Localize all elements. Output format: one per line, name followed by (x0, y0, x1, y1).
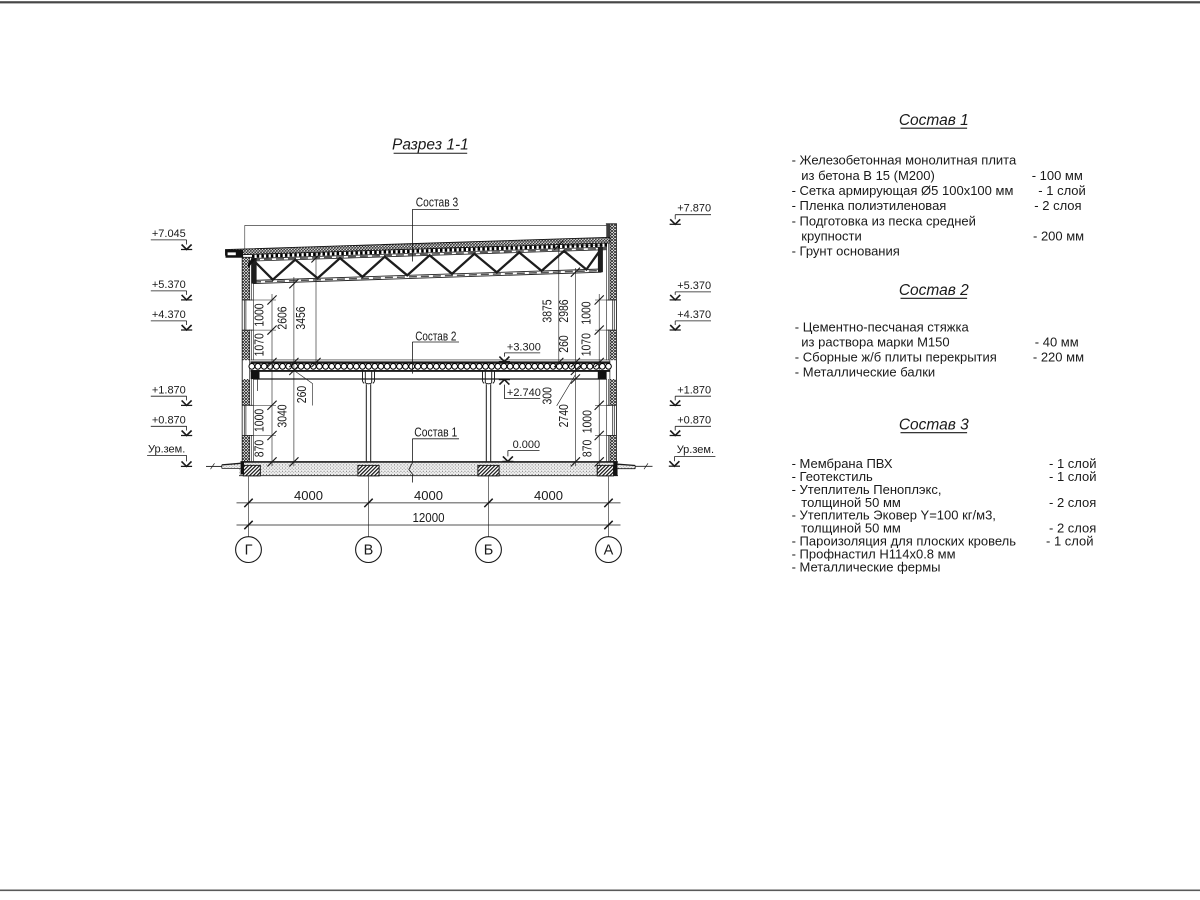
svg-text:870: 870 (580, 440, 595, 457)
svg-text:Состав 2: Состав 2 (415, 328, 456, 343)
svg-text:+0.870: +0.870 (152, 415, 186, 427)
svg-text:260: 260 (294, 386, 309, 403)
svg-text:- Сетка армирующая Ø5 100х100: - Сетка армирующая Ø5 100х100 мм (792, 183, 1014, 198)
svg-text:- 2 слоя: - 2 слоя (1049, 495, 1096, 510)
svg-text:- 1 слой: - 1 слой (1049, 469, 1097, 484)
svg-text:3456: 3456 (293, 306, 308, 329)
svg-text:+4.370: +4.370 (677, 309, 711, 321)
svg-text:2740: 2740 (556, 404, 571, 427)
svg-text:Б: Б (484, 543, 494, 559)
svg-text:+5.370: +5.370 (677, 280, 711, 292)
svg-text:+1.870: +1.870 (152, 384, 186, 396)
svg-text:300: 300 (540, 387, 555, 404)
svg-text:3875: 3875 (540, 299, 555, 322)
svg-text:- 200 мм: - 200 мм (1033, 228, 1084, 243)
svg-text:+3.300: +3.300 (507, 341, 541, 353)
svg-text:- Грунт основания: - Грунт основания (792, 244, 900, 259)
svg-text:Состав 1: Состав 1 (899, 112, 969, 129)
svg-text:- Железобетонная монолитная п: - Железобетонная монолитная плита (792, 153, 1017, 168)
svg-text:из бетона В 15 (М200): из бетона В 15 (М200) (801, 168, 935, 183)
svg-text:- 1 слой: - 1 слой (1046, 534, 1094, 549)
svg-text:+5.370: +5.370 (152, 279, 186, 291)
svg-text:- Металлические фермы: - Металлические фермы (792, 559, 941, 574)
svg-text:1070: 1070 (252, 333, 267, 356)
svg-text:Состав 3: Состав 3 (899, 416, 969, 433)
svg-text:Ур.зем.: Ур.зем. (677, 444, 714, 456)
svg-text:Г: Г (245, 543, 253, 559)
svg-text:+4.370: +4.370 (152, 309, 186, 321)
svg-text:крупности: крупности (801, 228, 861, 243)
svg-text:- 220 мм: - 220 мм (1033, 350, 1084, 365)
svg-text:3040: 3040 (274, 404, 289, 427)
svg-text:Разрез 1-1: Разрез 1-1 (392, 137, 469, 154)
svg-text:- Цементно-песчаная стяжка: - Цементно-песчаная стяжка (795, 320, 970, 335)
svg-text:4000: 4000 (294, 488, 323, 503)
svg-text:2606: 2606 (274, 306, 289, 329)
svg-text:+2.740: +2.740 (507, 387, 541, 399)
svg-text:Состав 1: Состав 1 (414, 424, 457, 439)
svg-text:- 40 мм: - 40 мм (1035, 335, 1079, 350)
svg-text:1000: 1000 (252, 409, 267, 432)
svg-text:+1.870: +1.870 (677, 384, 711, 396)
svg-text:1000: 1000 (580, 410, 595, 433)
svg-text:- Металлические балки: - Металлические балки (795, 365, 935, 380)
svg-text:12000: 12000 (413, 510, 445, 525)
svg-text:из раствора марки М150: из раствора марки М150 (801, 335, 949, 350)
svg-text:260: 260 (556, 335, 571, 352)
svg-text:+0.870: +0.870 (677, 415, 711, 427)
svg-text:- Пленка полиэтиленовая: - Пленка полиэтиленовая (792, 198, 947, 213)
svg-text:Состав 3: Состав 3 (416, 195, 458, 210)
svg-text:А: А (604, 543, 614, 559)
svg-text:- 2 слоя: - 2 слоя (1034, 198, 1081, 213)
svg-text:- Сборные ж/б плиты перекрытия: - Сборные ж/б плиты перекрытия (795, 350, 997, 365)
svg-text:+7.870: +7.870 (677, 203, 711, 215)
svg-text:4000: 4000 (414, 488, 443, 503)
svg-text:870: 870 (252, 440, 267, 457)
svg-text:1000: 1000 (579, 301, 594, 324)
svg-text:В: В (364, 543, 374, 559)
svg-text:0.000: 0.000 (513, 439, 541, 451)
svg-text:- Подготовка из песка средней: - Подготовка из песка средней (792, 213, 976, 228)
svg-text:1070: 1070 (579, 333, 594, 356)
svg-text:Состав 2: Состав 2 (899, 282, 969, 299)
svg-text:Ур.зем.: Ур.зем. (148, 443, 185, 455)
svg-text:2986: 2986 (556, 299, 571, 322)
svg-text:- 1 слой: - 1 слой (1038, 183, 1086, 198)
svg-text:4000: 4000 (534, 488, 563, 503)
svg-text:+7.045: +7.045 (152, 228, 186, 240)
svg-text:1000: 1000 (252, 303, 267, 326)
svg-text:- 100 мм: - 100 мм (1032, 168, 1083, 183)
